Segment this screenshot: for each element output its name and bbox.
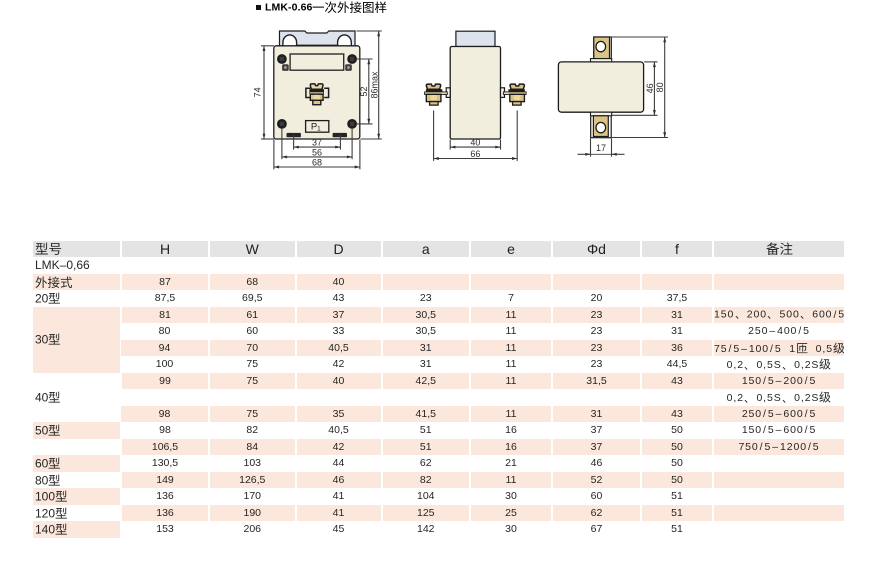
svg-text:86max: 86max bbox=[369, 71, 379, 99]
svg-text:68: 68 bbox=[312, 157, 322, 167]
svg-text:40: 40 bbox=[470, 138, 480, 148]
svg-text:56: 56 bbox=[312, 147, 322, 157]
svg-text:66: 66 bbox=[470, 149, 480, 159]
svg-text:52: 52 bbox=[359, 86, 369, 96]
svg-text:74: 74 bbox=[252, 87, 262, 97]
svg-text:46: 46 bbox=[645, 83, 655, 93]
svg-text:37: 37 bbox=[312, 138, 322, 148]
svg-text:80: 80 bbox=[655, 82, 665, 92]
svg-text:17: 17 bbox=[596, 143, 606, 153]
